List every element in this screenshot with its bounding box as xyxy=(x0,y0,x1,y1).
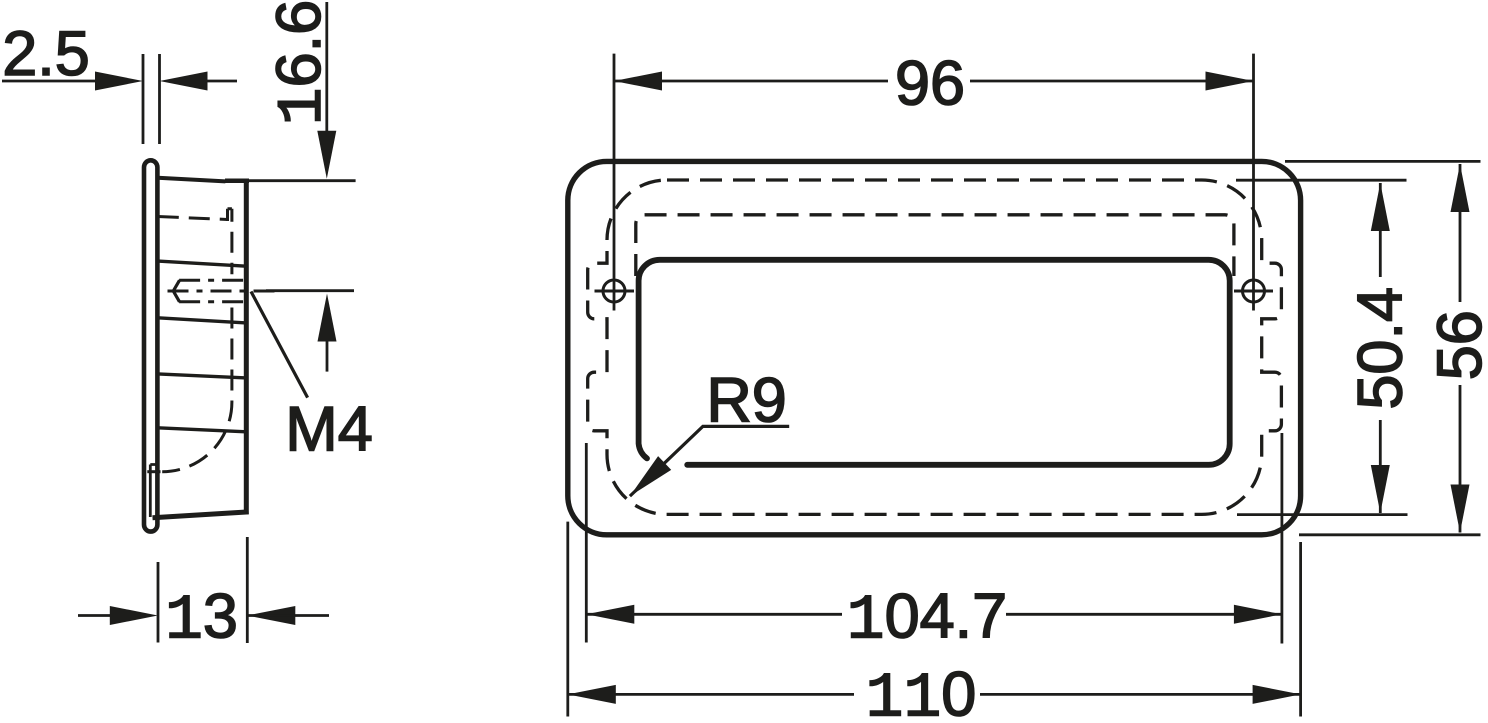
svg-text:M4: M4 xyxy=(285,395,373,465)
svg-text:56: 56 xyxy=(1425,310,1488,380)
svg-text:R9: R9 xyxy=(706,366,787,436)
svg-text:104.7: 104.7 xyxy=(847,581,1007,656)
svg-text:50.4: 50.4 xyxy=(1345,287,1415,410)
svg-text:13: 13 xyxy=(165,582,238,657)
svg-text:110: 110 xyxy=(866,659,977,723)
svg-text:96: 96 xyxy=(895,48,965,118)
svg-text:2.5: 2.5 xyxy=(2,19,90,89)
